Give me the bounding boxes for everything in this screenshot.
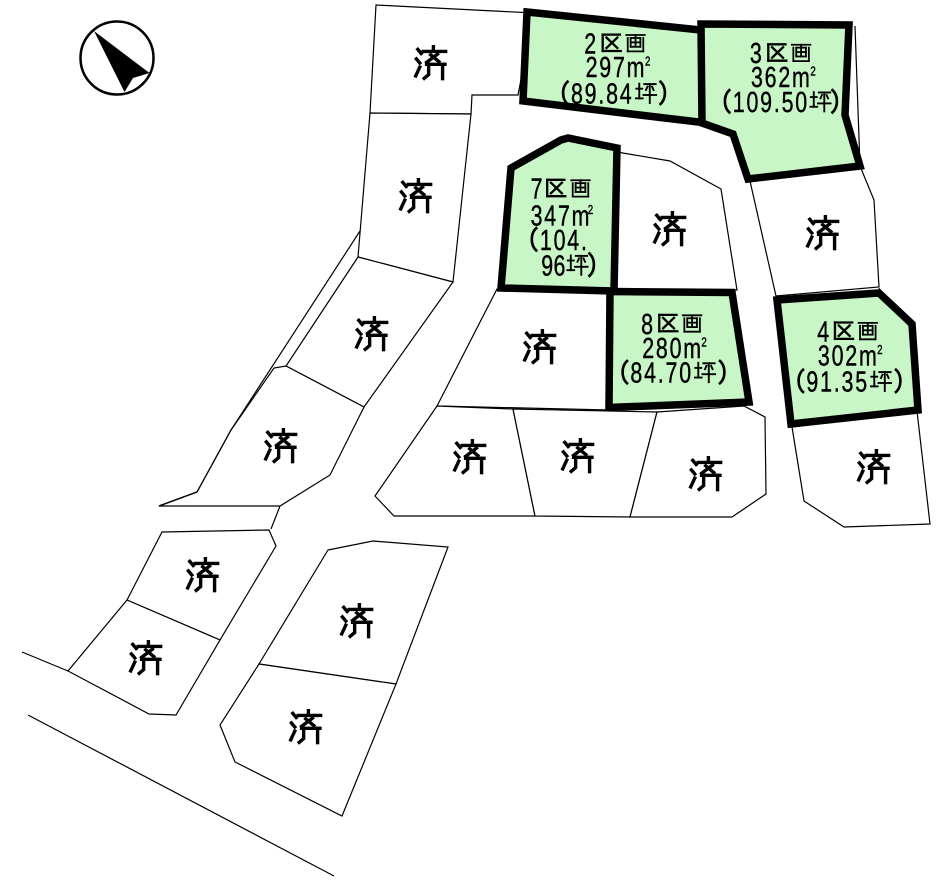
svg-text:2: 2 [701,337,706,351]
svg-text:96: 96 [541,250,566,282]
svg-text:2: 2 [645,56,650,70]
svg-text:84.70: 84.70 [630,358,692,390]
svg-text:2: 2 [810,65,815,79]
svg-text:2: 2 [588,204,593,218]
svg-text:91.35: 91.35 [806,367,868,399]
svg-text:89.84: 89.84 [571,79,633,111]
svg-text:109.50: 109.50 [733,87,809,119]
svg-text:2: 2 [877,344,882,358]
